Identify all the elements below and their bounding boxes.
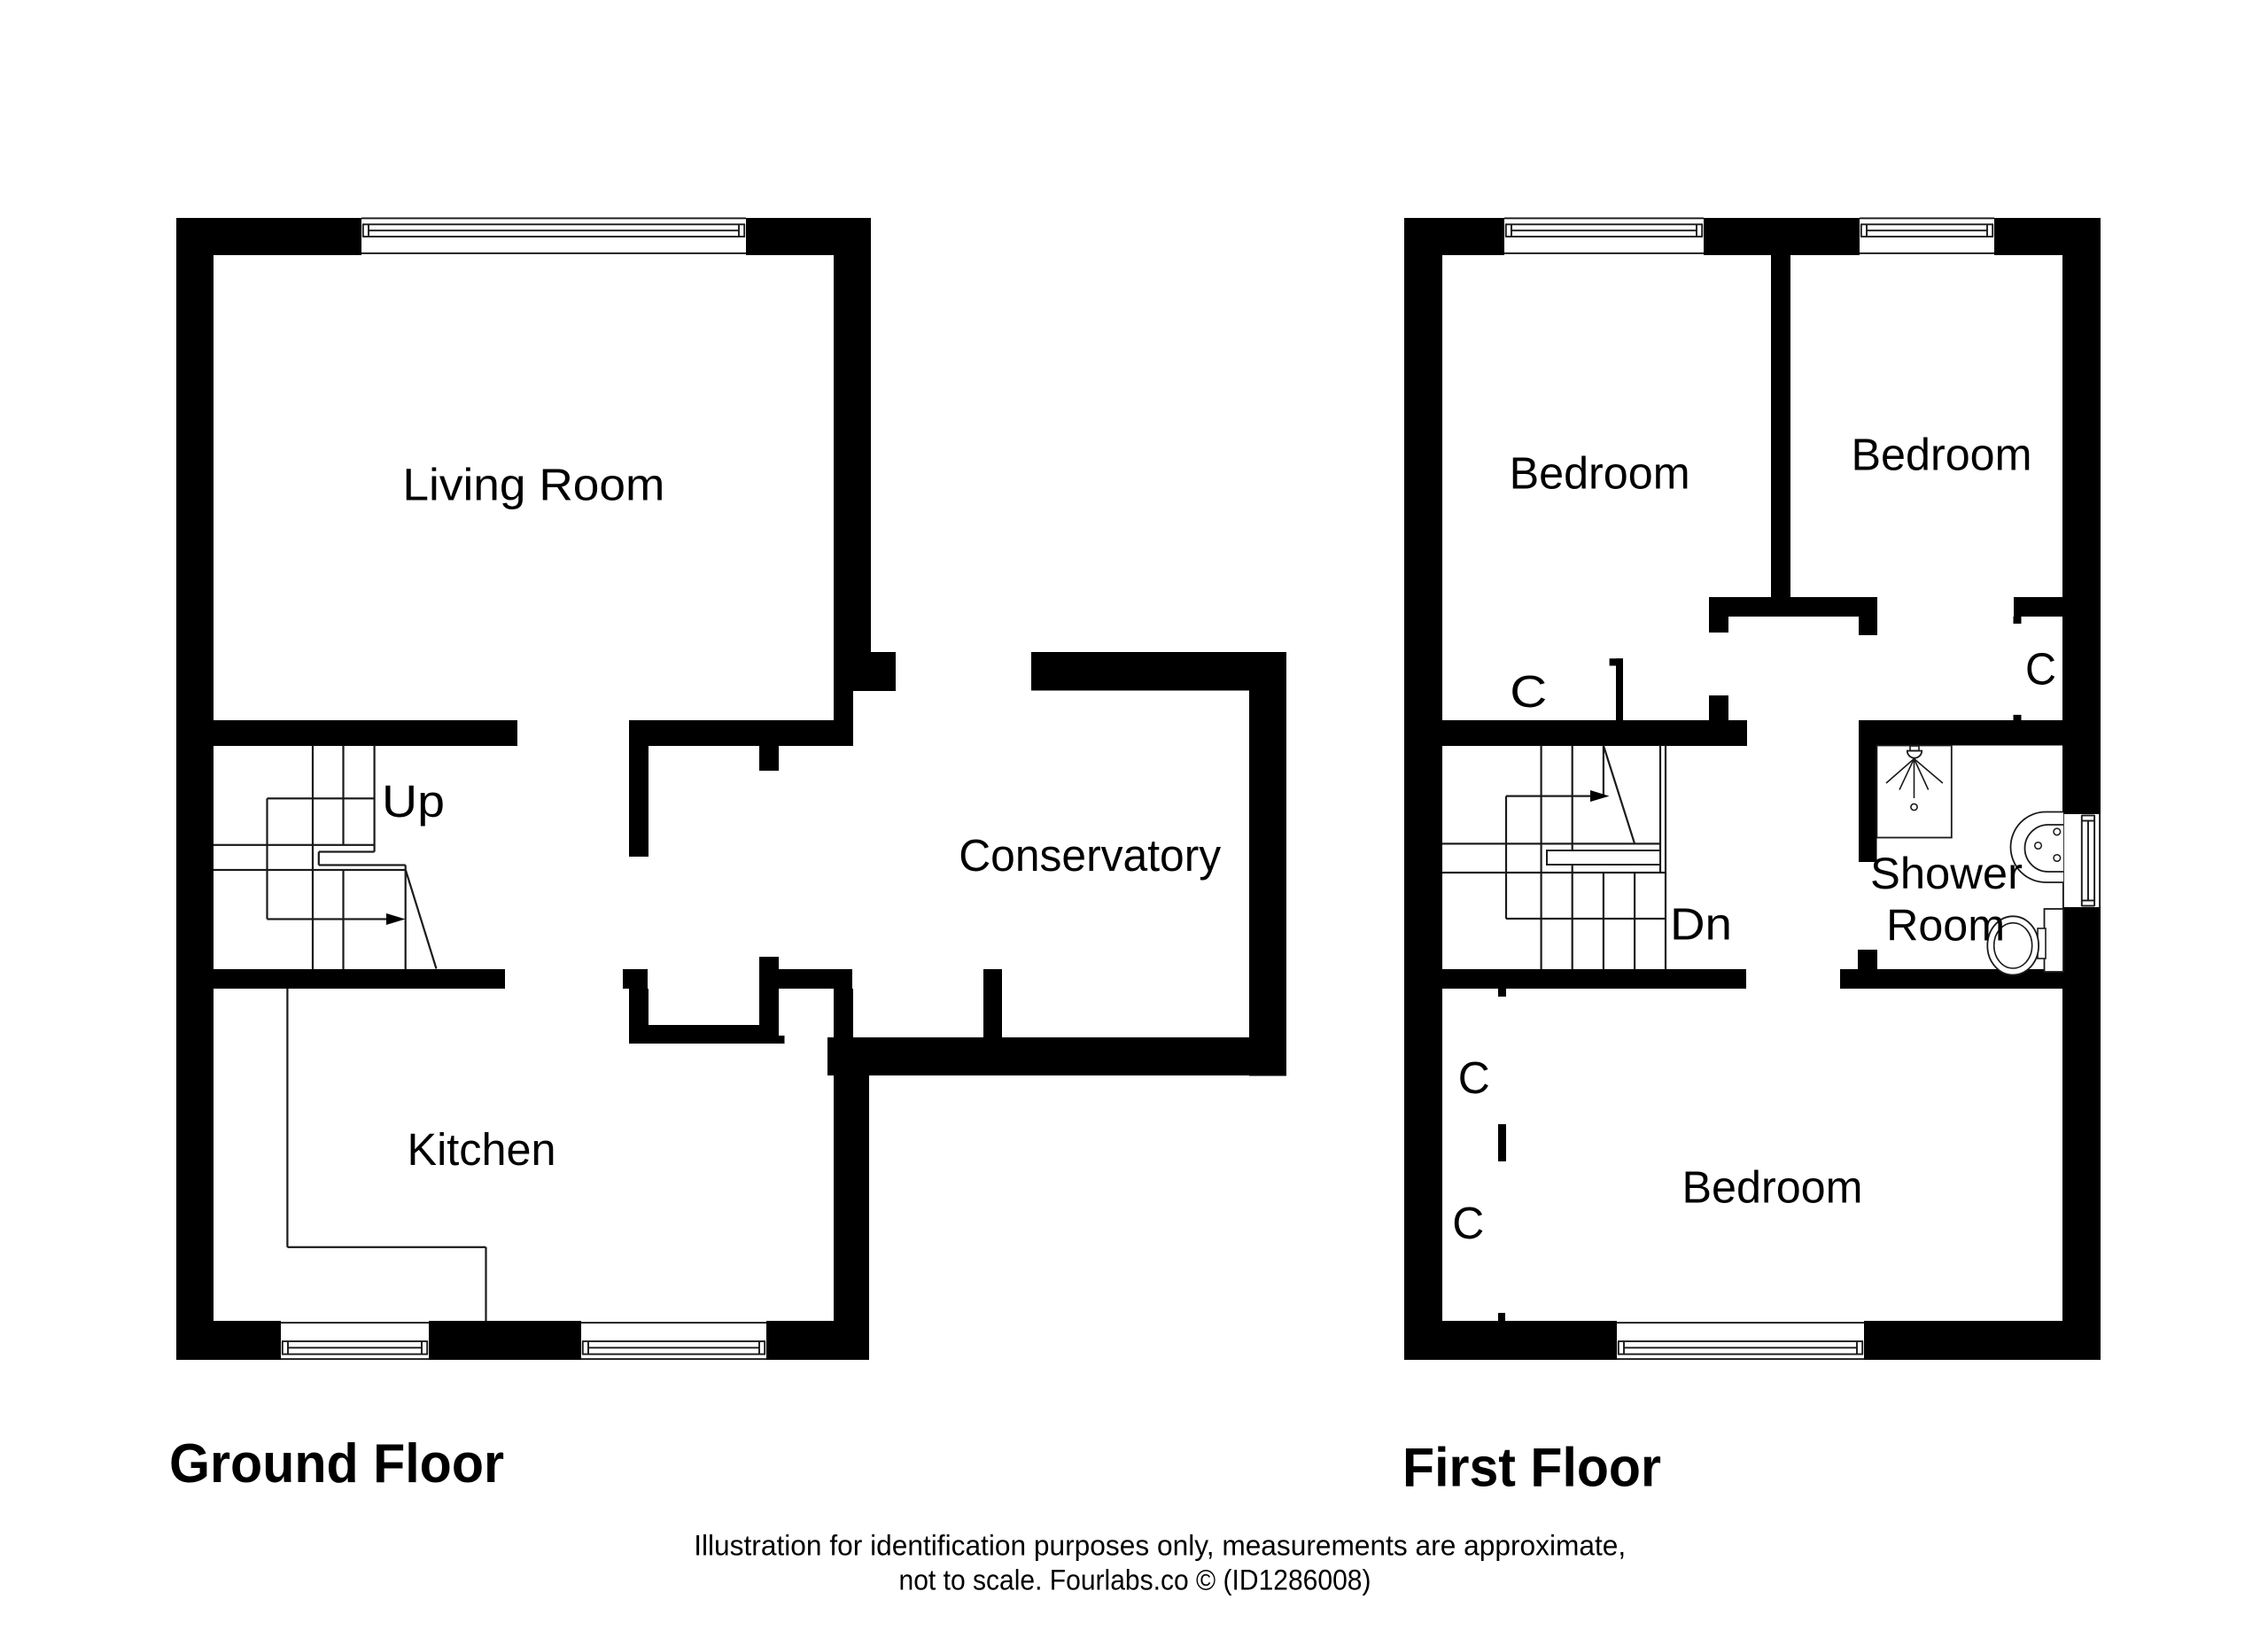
svg-text:Living Room: Living Room [402,460,664,510]
svg-text:C: C [1452,1198,1484,1248]
svg-text:Bedroom: Bedroom [1510,448,1690,499]
svg-text:Up: Up [382,776,445,827]
svg-text:not to scale. Fourlabs.co © (I: not to scale. Fourlabs.co © (ID1286008) [899,1564,1371,1596]
svg-text:Room: Room [1886,900,2005,950]
svg-text:C: C [1458,1052,1490,1103]
svg-text:Illustration for identificatio: Illustration for identification purposes… [694,1529,1626,1561]
svg-text:Bedroom: Bedroom [1682,1162,1863,1213]
svg-text:Shower: Shower [1870,849,2023,898]
svg-text:Dn: Dn [1670,899,1732,950]
svg-text:Kitchen: Kitchen [408,1124,556,1175]
svg-text:First Floor: First Floor [1402,1437,1661,1499]
svg-text:Ground Floor: Ground Floor [169,1432,504,1494]
svg-text:Conservatory: Conservatory [959,830,1221,881]
svg-text:C: C [1510,666,1547,717]
svg-text:C: C [2025,644,2056,695]
svg-text:Bedroom: Bedroom [1852,429,2032,479]
